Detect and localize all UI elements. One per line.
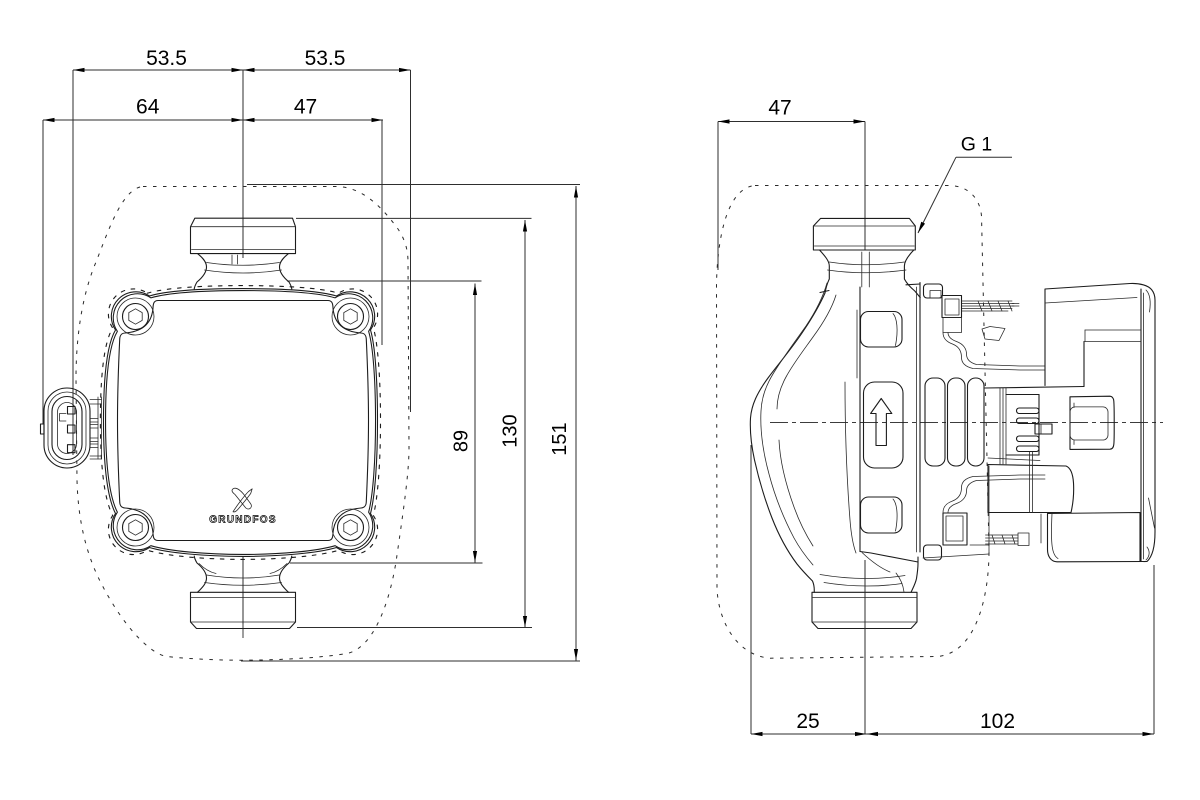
svg-text:102: 102 [980,710,1015,733]
svg-text:47: 47 [294,96,317,119]
svg-text:GRUNDFOS: GRUNDFOS [209,515,277,526]
svg-text:47: 47 [768,97,791,120]
svg-text:53.5: 53.5 [305,47,346,70]
svg-text:64: 64 [136,96,160,119]
svg-text:89: 89 [451,430,473,452]
svg-text:151: 151 [549,422,571,455]
svg-text:G 1: G 1 [961,134,992,156]
svg-text:53.5: 53.5 [146,47,187,70]
svg-text:25: 25 [796,710,819,733]
svg-text:130: 130 [500,414,522,447]
